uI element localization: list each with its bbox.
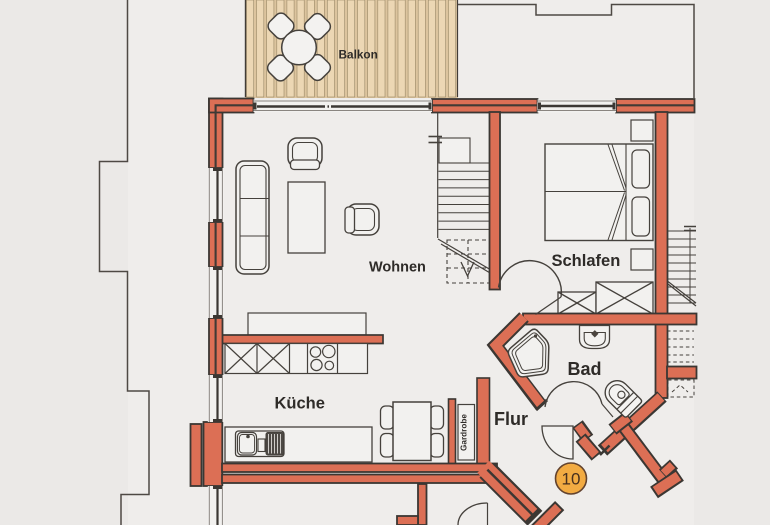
svg-text:Schlafen: Schlafen bbox=[552, 252, 621, 270]
svg-text:Küche: Küche bbox=[275, 395, 325, 413]
svg-text:Bad: Bad bbox=[568, 359, 602, 379]
svg-text:Wohnen: Wohnen bbox=[369, 260, 426, 276]
svg-text:Gardrobe: Gardrobe bbox=[460, 414, 469, 451]
svg-text:10: 10 bbox=[562, 470, 581, 489]
svg-text:Flur: Flur bbox=[494, 409, 528, 429]
svg-text:Balkon: Balkon bbox=[339, 48, 378, 62]
